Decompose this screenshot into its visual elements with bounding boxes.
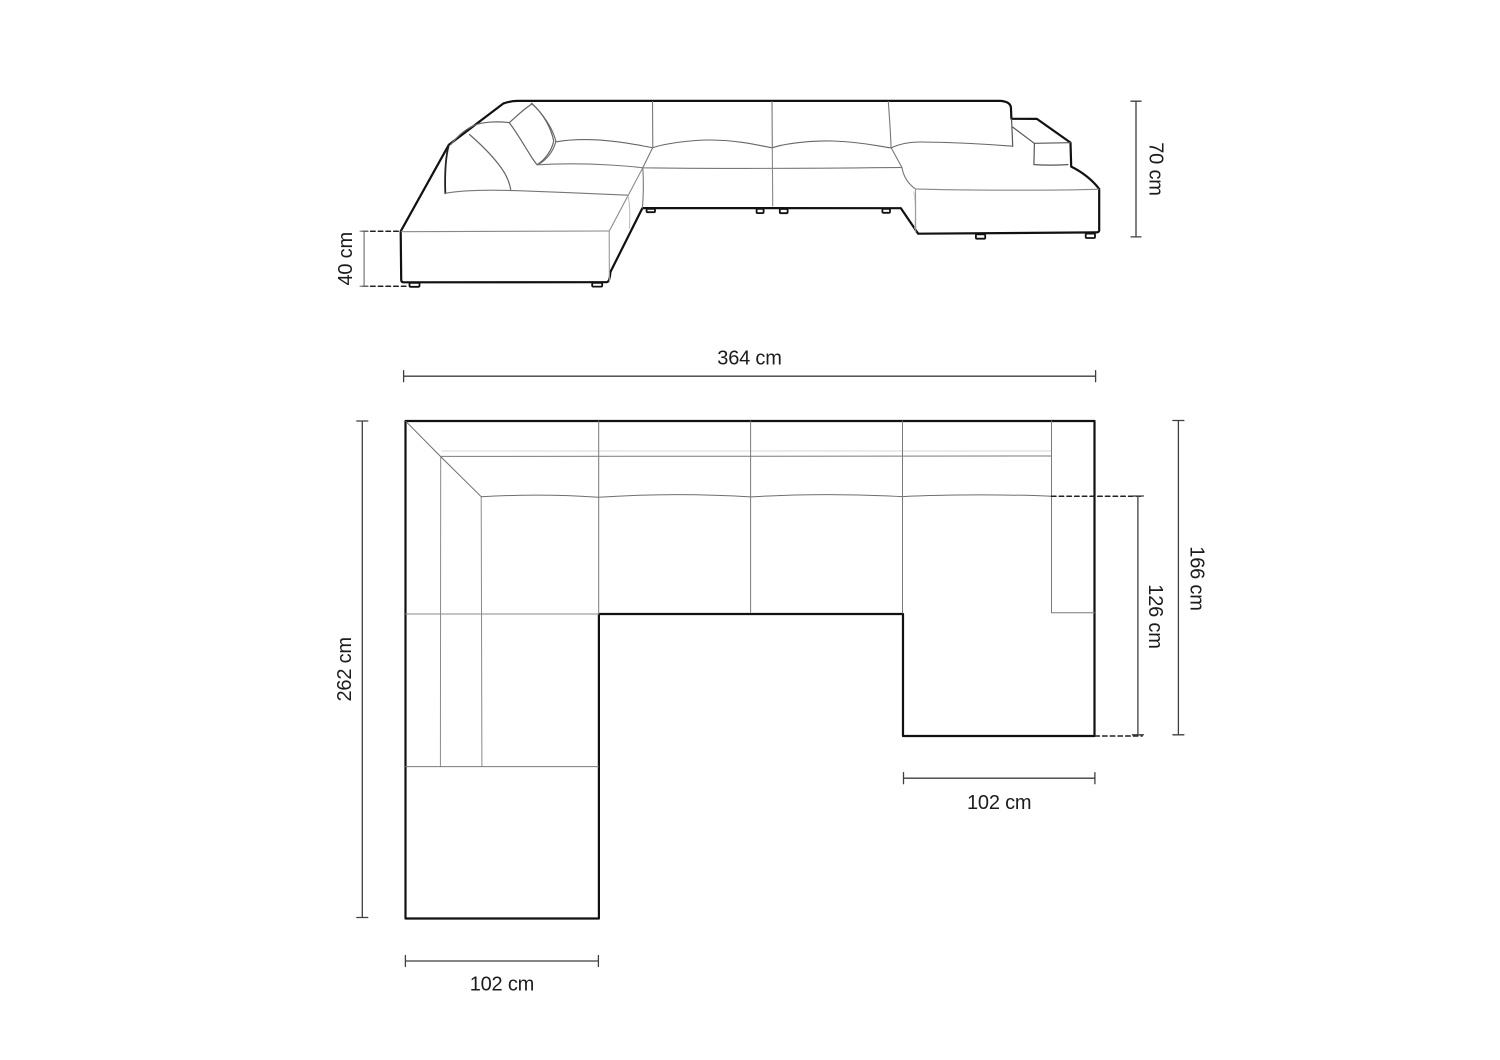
svg-text:166 cm: 166 cm (1185, 546, 1207, 610)
svg-text:102 cm: 102 cm (967, 792, 1031, 814)
svg-text:364 cm: 364 cm (717, 348, 781, 370)
svg-text:102 cm: 102 cm (470, 974, 534, 996)
svg-text:40 cm: 40 cm (335, 232, 357, 285)
svg-text:262 cm: 262 cm (334, 637, 356, 701)
svg-text:126 cm: 126 cm (1144, 584, 1166, 648)
svg-text:70 cm: 70 cm (1144, 142, 1166, 195)
